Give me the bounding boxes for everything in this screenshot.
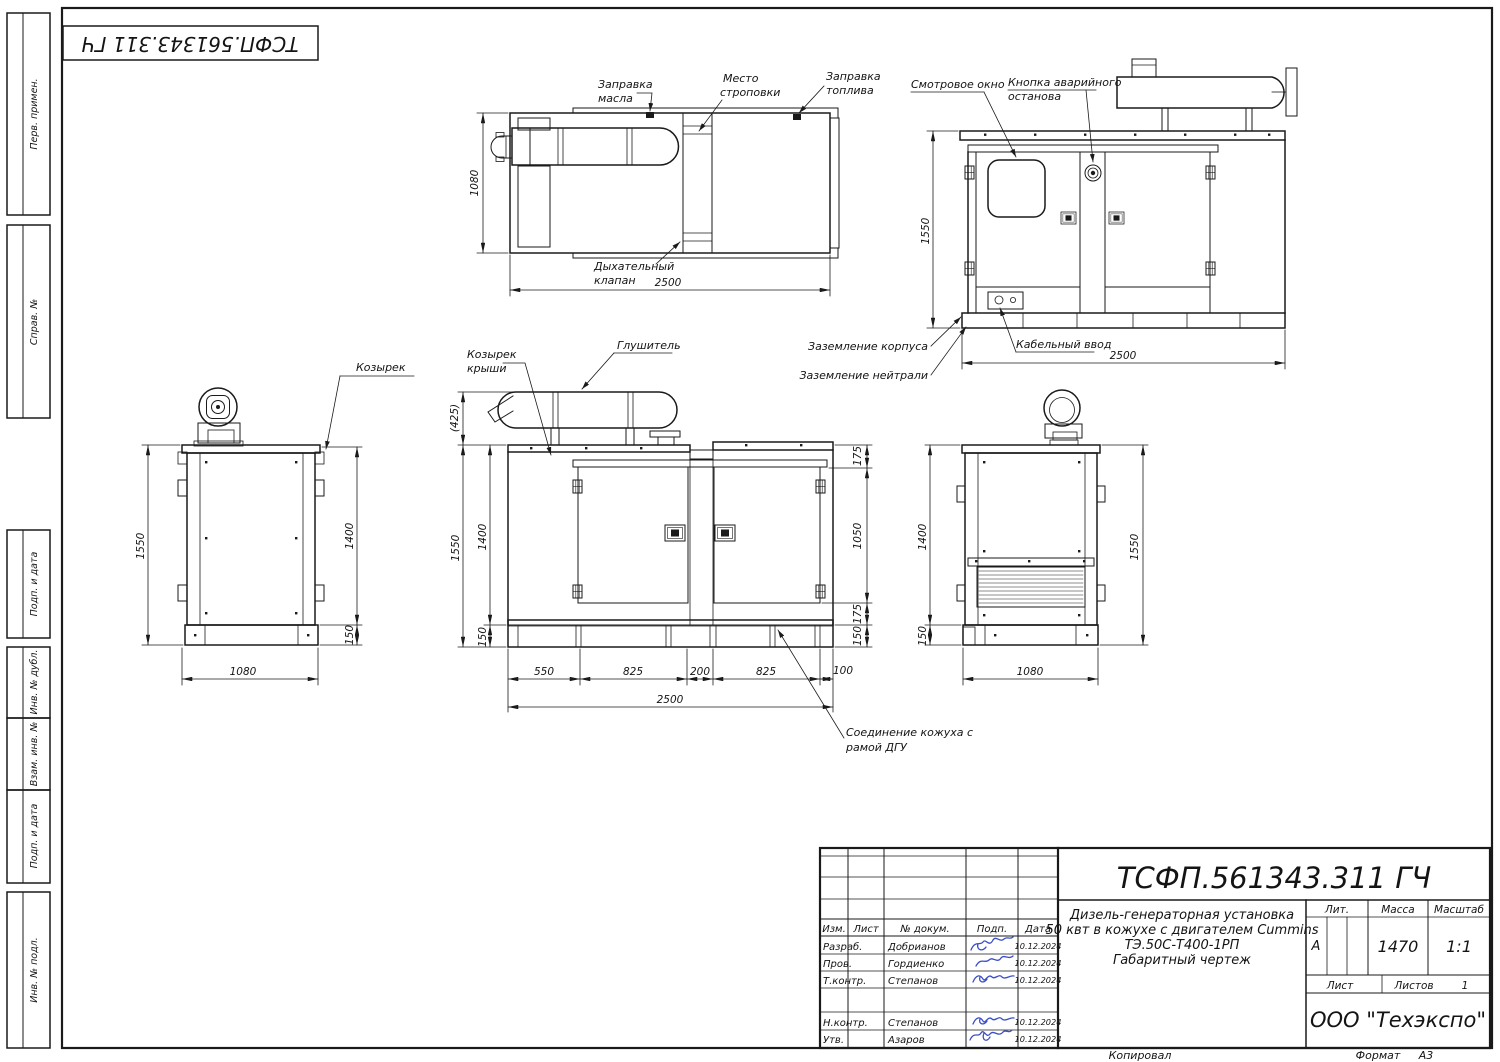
row-role: Разраб. [823, 941, 862, 953]
margin-stamps: Перв. примен. Справ. № Подп. и дата Инв.… [7, 13, 50, 1048]
dim-front-b3: 200 [690, 666, 710, 678]
dim-endright-width: 1080 [1017, 666, 1044, 678]
dim-front-bottom-offset: 175 [852, 604, 864, 624]
row-date: 10.12.2024 [1015, 958, 1062, 968]
inspection-window [988, 160, 1045, 217]
margin-label: Перв. примен. [29, 78, 40, 149]
row-name: Степанов [888, 976, 938, 987]
roof-fan [194, 388, 243, 446]
company-name: ООО "Техэкспо" [1310, 1008, 1486, 1032]
label-sling-point: строповки [720, 86, 780, 99]
label-ground-neutral: Заземление нейтрали [799, 369, 928, 382]
dim-plan-width: 1080 [469, 169, 481, 196]
label-frame-joint: Соединение кожуха с [846, 726, 973, 739]
label-estop: останова [1008, 90, 1061, 103]
label-muffler: Глушитель [617, 339, 681, 352]
designation: ТСФП.561343.311 ГЧ [1117, 861, 1432, 895]
estop-button [1085, 165, 1101, 181]
dim-front-body: 1400 [477, 523, 489, 550]
dim-endleft-height: 1550 [135, 532, 147, 559]
row-name: Степанов [888, 1018, 938, 1029]
margin-box-vzam-inv: Взам. инв. № [7, 718, 50, 790]
label-window: Смотровое окно [911, 78, 1005, 91]
row-name: Гордиенко [888, 959, 944, 970]
sheets-value: 1 [1462, 980, 1469, 992]
lit-value: А [1311, 939, 1321, 954]
margin-label: Взам. инв. № [29, 722, 40, 787]
drawing-sheet: Перв. примен. Справ. № Подп. и дата Инв.… [0, 0, 1500, 1062]
dim-side-height: 1550 [920, 217, 932, 244]
dim-front-muffler: (425) [449, 404, 461, 432]
col-sign: Подп. [977, 924, 1007, 935]
margin-box-inv-dubl: Инв. № дубл. [7, 647, 50, 718]
dim-endright-height: 1550 [1129, 533, 1141, 560]
dim-front-height: 1550 [450, 534, 462, 561]
label-cable-entry: Кабельный ввод [1016, 338, 1111, 351]
row-name: Добрианов [887, 941, 946, 953]
col-list: Лист [852, 924, 880, 935]
dim-front-door: 1050 [852, 522, 864, 549]
mass-label: Масса [1381, 904, 1414, 916]
margin-label: Подп. и дата [29, 803, 40, 868]
dim-endleft-width: 1080 [230, 666, 257, 678]
row-role: Пров. [823, 959, 852, 970]
margin-box-perv-primen: Перв. примен. [7, 13, 50, 215]
view-end-left: 1550 1400 150 1080 Козырек [135, 361, 414, 685]
margin-label: Подп. и дата [29, 551, 40, 616]
label-breather-valve: Дыхательный [593, 260, 674, 273]
dim-plan-length: 2500 [655, 277, 682, 289]
row-role: Н.контр. [823, 1018, 868, 1029]
scale-label: Масштаб [1434, 904, 1484, 916]
row-name: Азаров [887, 1035, 925, 1046]
description-line: ТЭ.50С-Т400-1РП [1125, 938, 1240, 953]
engineering-drawing: Перв. примен. Справ. № Подп. и дата Инв.… [0, 0, 1500, 1062]
label-visor: Козырек [356, 361, 406, 374]
cable-entry-plate [988, 292, 1023, 309]
dim-endleft-body: 1400 [344, 522, 356, 549]
dim-front-top-offset: 175 [852, 446, 864, 466]
top-designation-stamp: ТСФП.561343.311 ГЧ [63, 26, 318, 60]
format-label: Формат [1356, 1049, 1401, 1062]
label-frame-joint: рамой ДГУ [845, 741, 908, 754]
row-role: Т.контр. [823, 976, 866, 987]
margin-box-sprav-no: Справ. № [7, 225, 50, 418]
view-plan: 1080 2500 Заправка масла Место строповки… [469, 70, 881, 296]
sheet-label: Лист [1326, 980, 1354, 992]
margin-box-podp-data-1: Подп. и дата [7, 530, 50, 638]
dim-front-b2: 825 [623, 666, 643, 678]
col-doc: № докум. [899, 924, 949, 935]
margin-label: Справ. № [29, 299, 40, 345]
dim-side-length: 2500 [1110, 350, 1137, 362]
description-line: Габаритный чертеж [1113, 953, 1251, 968]
label-oil-fill: масла [598, 92, 633, 105]
mass-value: 1470 [1378, 937, 1419, 956]
margin-label: Инв. № дубл. [29, 650, 40, 715]
dim-endright-body: 1400 [917, 523, 929, 550]
sheets-label: Листов [1393, 980, 1433, 992]
dim-front-skid-right: 150 [852, 626, 864, 646]
dim-front-b1: 550 [534, 666, 554, 678]
label-breather-valve: клапан [594, 274, 636, 287]
scale-value: 1:1 [1446, 937, 1472, 956]
row-date: 10.12.2024 [1015, 1034, 1062, 1044]
lit-label: Лит. [1324, 904, 1349, 916]
dim-front-length: 2500 [657, 694, 684, 706]
label-fuel-fill: Заправка [826, 70, 881, 83]
dim-endleft-skid: 150 [344, 625, 356, 645]
label-oil-fill: Заправка [598, 78, 653, 91]
margin-label: Инв. № подл. [29, 937, 40, 1003]
label-sling-point: Место [723, 72, 759, 85]
signatures [970, 937, 1014, 1040]
dim-endright-skid: 150 [917, 626, 929, 646]
dim-front-b4: 825 [756, 666, 776, 678]
roof-fan-rear [1044, 390, 1082, 445]
row-date: 10.12.2024 [1015, 1017, 1062, 1027]
dim-front-skid-left: 150 [477, 627, 489, 647]
copied-label: Копировал [1109, 1049, 1172, 1062]
title-block: Изм. Лист № докум. Подп. Дата Разраб. До… [820, 848, 1490, 1048]
label-fuel-fill: топлива [826, 84, 874, 97]
description-line: Дизель-генераторная установка [1069, 908, 1294, 923]
description-line: 50 квт в кожухе с двигателем Cummins [1046, 923, 1319, 938]
margin-box-podp-data-2: Подп. и дата [7, 790, 50, 883]
label-estop: Кнопка аварийного [1008, 76, 1122, 89]
label-ground-body: Заземление корпуса [808, 340, 928, 353]
rotated-designation: ТСФП.561343.311 ГЧ [81, 32, 298, 56]
format-value: А3 [1418, 1049, 1434, 1062]
row-date: 10.12.2024 [1015, 941, 1062, 951]
sheet-footer: Копировал Формат А3 [1109, 1049, 1434, 1062]
view-end-right: 1400 150 1550 1080 [917, 390, 1148, 685]
label-roof-visor: Козырек [467, 348, 517, 361]
ground-terminal [963, 627, 975, 645]
view-front: (425) 1550 1400 150 175 1050 175 150 550… [449, 339, 973, 754]
row-date: 10.12.2024 [1015, 975, 1062, 985]
col-izm: Изм. [822, 924, 846, 935]
label-roof-visor: крыши [467, 362, 507, 375]
margin-box-inv-podl: Инв. № подл. [7, 892, 50, 1048]
row-role: Утв. [823, 1035, 844, 1046]
view-side: 1550 2500 Смотровое окно Кнопка аварийно… [799, 59, 1297, 382]
dim-front-b5: 100 [833, 665, 853, 677]
mesh-grille-main [518, 166, 550, 247]
